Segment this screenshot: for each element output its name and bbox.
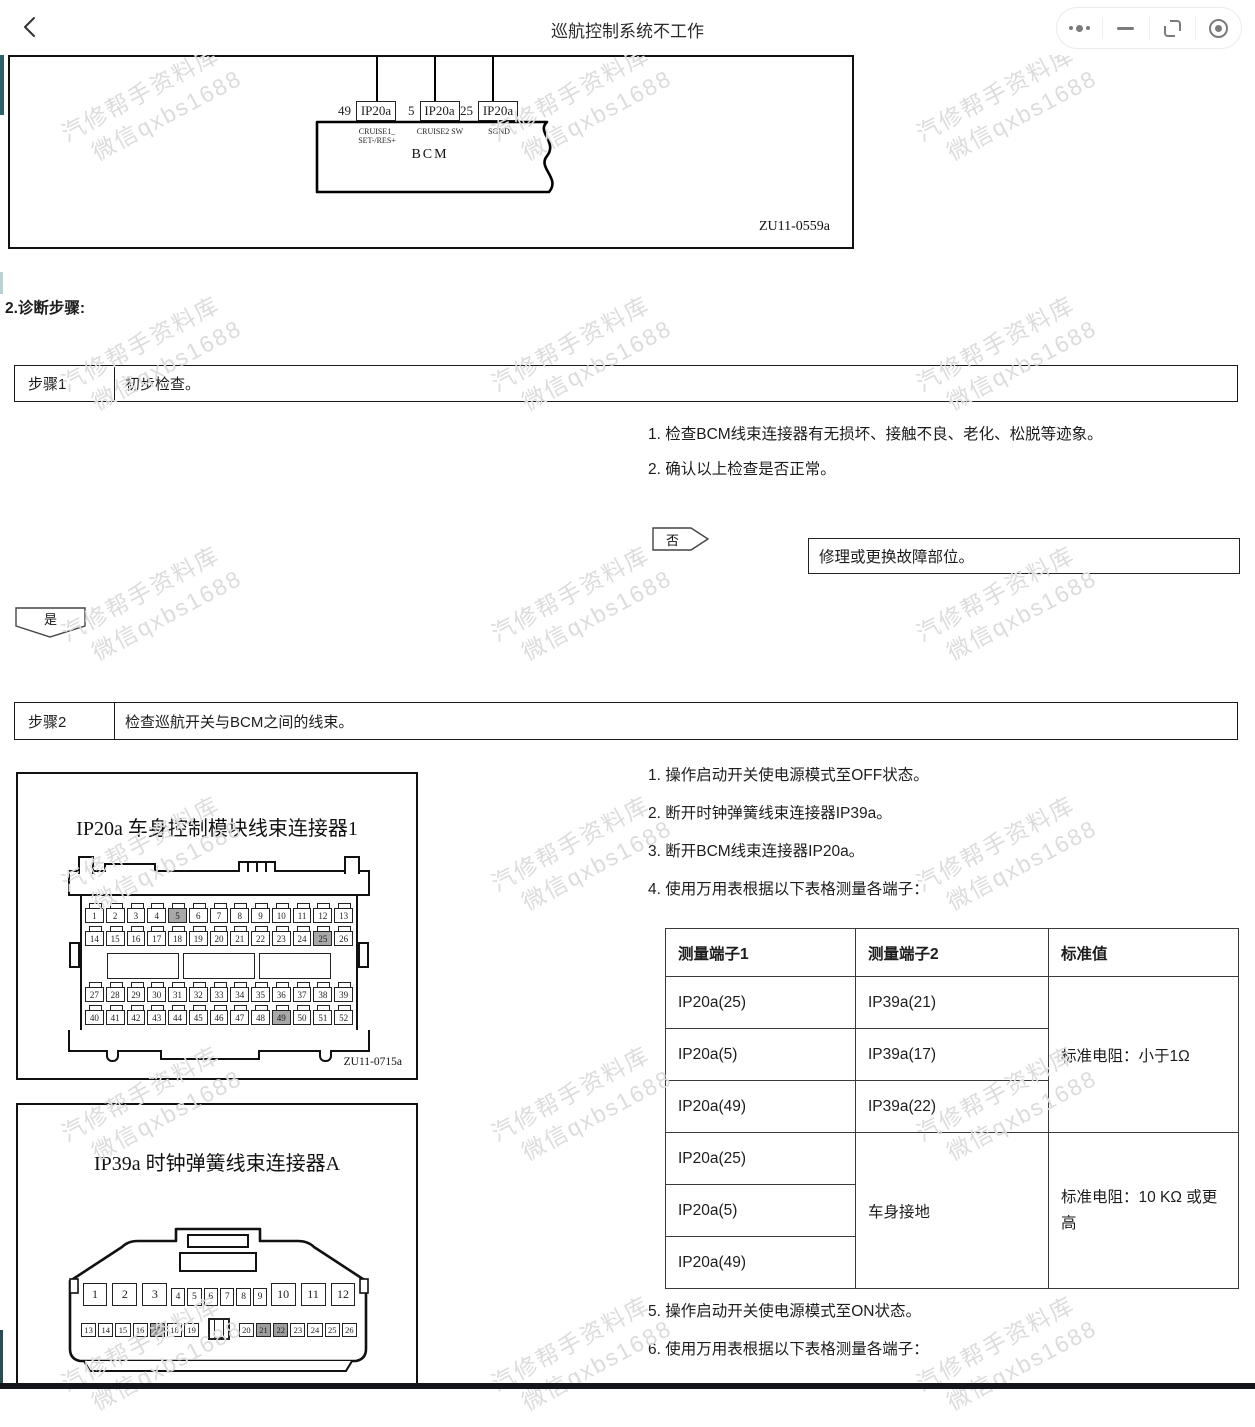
connector-code: IP20a	[356, 101, 396, 121]
ip20a-pin-24: 24	[293, 931, 312, 946]
ip39a-pin-26: 26	[342, 1323, 357, 1337]
exit-target-icon[interactable]	[1196, 8, 1241, 48]
terminal1-cell: IP20a(5)	[666, 1029, 856, 1081]
ip20a-pin-17: 17	[147, 931, 166, 946]
ip20a-pin-row-2: 27282930313233343536373839	[85, 987, 353, 1002]
watermark: 汽修帮手资料库微信qxbs1688	[486, 535, 677, 676]
left-edge-dark	[0, 1330, 3, 1383]
ip20a-pin-8: 8	[230, 908, 249, 923]
pin-terminal-49: 49 IP20a	[338, 101, 396, 121]
ip20a-pin-38: 38	[313, 987, 332, 1002]
figure-code: ZU11-0715a	[344, 1056, 402, 1068]
housing-ribs	[238, 861, 274, 872]
ip20a-pin-49: 49	[272, 1010, 291, 1025]
ip39a-row1: 123456789101112	[80, 1283, 358, 1306]
ip20a-pin-7: 7	[210, 908, 229, 923]
ip20a-pin-15: 15	[106, 931, 125, 946]
ip20a-pin-12: 12	[313, 908, 332, 923]
standard-value-cell: 标准电阻：小于1Ω	[1049, 977, 1239, 1133]
list-item: 2. 断开时钟弹簧线束连接器IP39a。	[648, 803, 929, 825]
no-branch-flag: 否	[652, 527, 710, 551]
ip39a-pin-7: 7	[220, 1288, 234, 1306]
mount-ear	[78, 856, 94, 874]
housing-step	[104, 863, 156, 872]
ip20a-connector-drawing: 12345678910111213 1415161718192021222324…	[68, 870, 370, 1052]
wire-line	[376, 57, 378, 103]
repair-action-box: 修理或更换故障部位。	[808, 538, 1240, 574]
connector-bottom-flange	[68, 1030, 370, 1052]
ip39a-pin-8: 8	[236, 1288, 250, 1306]
standard-value-cell: 标准电阻：10 KΩ 或更高	[1049, 1133, 1239, 1289]
wire-line	[434, 57, 436, 103]
ip20a-pin-40: 40	[85, 1010, 104, 1025]
ip20a-pin-5: 5	[168, 908, 187, 923]
ip39a-pin-21: 21	[256, 1323, 271, 1337]
ip20a-pin-29: 29	[127, 987, 146, 1002]
step1-instructions: 1. 检查BCM线束连接器有无损坏、接触不良、老化、松脱等迹象。 2. 确认以上…	[648, 424, 1103, 494]
ip39a-pin-17: 17	[150, 1323, 165, 1337]
ip20a-pin-22: 22	[251, 931, 270, 946]
ip39a-pin-10: 10	[271, 1283, 296, 1306]
pin-terminal-25: 25 IP20a	[460, 101, 518, 121]
ip39a-pin-6: 6	[204, 1288, 218, 1306]
ip20a-pin-42: 42	[127, 1010, 146, 1025]
ip39a-pin-23: 23	[290, 1323, 305, 1337]
step2-instructions: 1. 操作启动开关使电源模式至OFF状态。 2. 断开时钟弹簧线束连接器IP39…	[648, 765, 929, 917]
yes-flag-label: 是	[15, 609, 86, 628]
ip39a-pin-16: 16	[133, 1323, 148, 1337]
ip20a-pin-18: 18	[168, 931, 187, 946]
table-row: IP20a(25) IP39a(21) 标准电阻：小于1Ω	[666, 977, 1239, 1029]
minimize-icon[interactable]	[1103, 8, 1148, 48]
ip20a-pin-32: 32	[189, 987, 208, 1002]
ip20a-pin-row-1: 14151617181920212223242526	[85, 931, 353, 946]
pin-number: 5	[408, 103, 415, 119]
bottom-tongue	[160, 1050, 260, 1060]
ip20a-connector-figure: IP20a 车身控制模块线束连接器1 12345678910111213 141…	[16, 772, 418, 1080]
ip20a-pin-13: 13	[334, 908, 353, 923]
ip20a-pin-37: 37	[293, 987, 312, 1002]
ip39a-pin-13: 13	[81, 1323, 96, 1337]
step1-description: 初步检查。	[115, 366, 1237, 401]
miniprogram-capsule	[1056, 7, 1242, 49]
ip39a-pin-19: 19	[184, 1323, 199, 1337]
step2-description: 检查巡航开关与BCM之间的线束。	[115, 703, 1237, 739]
wire-line	[492, 57, 494, 103]
watermark: 汽修帮手资料库微信qxbs1688	[911, 35, 1102, 176]
list-item: 1. 检查BCM线束连接器有无损坏、接触不良、老化、松脱等迹象。	[648, 424, 1103, 446]
ip20a-pin-25: 25	[313, 931, 332, 946]
bottom-window-edge	[0, 1383, 1255, 1389]
side-bracket	[358, 942, 369, 968]
ip39a-pin-5: 5	[187, 1288, 201, 1306]
list-item: 2. 确认以上检查是否正常。	[648, 459, 1103, 481]
ip20a-pin-23: 23	[272, 931, 291, 946]
terminal1-cell: IP20a(49)	[666, 1081, 856, 1133]
ip39a-pin-20: 20	[239, 1323, 254, 1337]
ip39a-pin-15: 15	[115, 1323, 130, 1337]
ip20a-pin-6: 6	[189, 908, 208, 923]
signal-label: SGND	[459, 127, 539, 136]
ip20a-pin-27: 27	[85, 987, 104, 1002]
connector-code: IP20a	[420, 101, 460, 121]
ip20a-pin-50: 50	[293, 1010, 312, 1025]
step1-label: 步骤1	[15, 366, 115, 401]
ip39a-pin-2: 2	[112, 1283, 137, 1306]
blank-slot-row	[85, 953, 353, 979]
mount-ear	[344, 856, 360, 874]
col-header: 测量端子2	[856, 929, 1049, 977]
ip20a-pin-26: 26	[334, 931, 353, 946]
foot	[319, 1050, 332, 1062]
ip20a-pin-34: 34	[230, 987, 249, 1002]
ip20a-pin-16: 16	[127, 931, 146, 946]
ip39a-pin-4: 4	[171, 1288, 185, 1306]
section-heading: 2.诊断步骤:	[5, 296, 85, 318]
ip39a-connector-figure: IP39a 时钟弹簧线束连接器A 123456789101112 1314151…	[16, 1103, 418, 1389]
side-bracket	[69, 942, 80, 968]
ip39a-pin-12: 12	[331, 1283, 356, 1306]
watermark: 汽修帮手资料库微信qxbs1688	[486, 1035, 677, 1176]
ip20a-figure-title: IP20a 车身控制模块线束连接器1	[18, 812, 416, 841]
foot	[106, 1050, 119, 1062]
pin-number: 49	[338, 103, 351, 119]
list-item: 5. 操作启动开关使电源模式至ON状态。	[648, 1301, 929, 1323]
ip39a-pin-11: 11	[301, 1283, 326, 1306]
watermark: 汽修帮手资料库微信qxbs1688	[911, 285, 1102, 426]
step2-label: 步骤2	[15, 703, 115, 739]
step2-header-row: 步骤2 检查巡航开关与BCM之间的线束。	[14, 702, 1238, 740]
ip20a-pin-51: 51	[313, 1010, 332, 1025]
pin-terminal-5: 5 IP20a	[408, 101, 460, 121]
ip39a-pin-18: 18	[167, 1323, 182, 1337]
figure-code: ZU11-0559a	[759, 219, 830, 235]
list-item: 6. 使用万用表根据以下表格测量各端子：	[648, 1339, 929, 1361]
ip39a-pin-3: 3	[142, 1283, 167, 1306]
table-row: IP20a(25) 车身接地 标准电阻：10 KΩ 或更高	[666, 1133, 1239, 1185]
ip20a-pin-33: 33	[210, 987, 229, 1002]
terminal2-cell: IP39a(17)	[856, 1029, 1049, 1081]
ip20a-pin-row-0: 12345678910111213	[85, 908, 353, 923]
ip39a-center-key	[208, 1318, 230, 1340]
more-icon[interactable]	[1057, 8, 1102, 48]
step1-header-row: 步骤1 初步检查。	[14, 365, 1238, 402]
watermark: 汽修帮手资料库微信qxbs1688	[911, 1285, 1102, 1426]
ip20a-pin-31: 31	[168, 987, 187, 1002]
measurement-table: 测量端子1 测量端子2 标准值 IP20a(25) IP39a(21) 标准电阻…	[665, 928, 1239, 1289]
ip20a-pin-10: 10	[272, 908, 291, 923]
watermark: 汽修帮手资料库微信qxbs1688	[56, 535, 247, 676]
list-item: 4. 使用万用表根据以下表格测量各端子：	[648, 879, 929, 901]
ip20a-pin-30: 30	[147, 987, 166, 1002]
ip20a-pin-36: 36	[272, 987, 291, 1002]
table-header-row: 测量端子1 测量端子2 标准值	[666, 929, 1239, 977]
ip39a-pin-25: 25	[325, 1323, 340, 1337]
ip20a-pin-3: 3	[127, 908, 146, 923]
ip20a-pin-52: 52	[334, 1010, 353, 1025]
ip39a-pin-22: 22	[273, 1323, 288, 1337]
ip20a-pin-28: 28	[106, 987, 125, 1002]
terminal1-cell: IP20a(25)	[666, 977, 856, 1029]
pin-field: 12345678910111213 1415161718192021222324…	[80, 894, 358, 1032]
connector-code: IP20a	[478, 101, 518, 121]
ip20a-pin-21: 21	[230, 931, 249, 946]
terminal1-cell: IP20a(49)	[666, 1237, 856, 1289]
ip20a-pin-4: 4	[147, 908, 166, 923]
fullscreen-icon[interactable]	[1150, 8, 1195, 48]
ip39a-pin-9: 9	[253, 1288, 267, 1306]
list-item: 1. 操作启动开关使电源模式至OFF状态。	[648, 765, 929, 787]
ip39a-figure-title: IP39a 时钟弹簧线束连接器A	[18, 1147, 416, 1176]
ip39a-pin-24: 24	[307, 1323, 322, 1337]
terminal2-cell: IP39a(21)	[856, 977, 1049, 1029]
pin-number: 25	[460, 103, 473, 119]
col-header: 测量端子1	[666, 929, 856, 977]
ip20a-pin-43: 43	[147, 1010, 166, 1025]
watermark: 汽修帮手资料库微信qxbs1688	[486, 285, 677, 426]
watermark: 汽修帮手资料库微信qxbs1688	[911, 785, 1102, 926]
ip39a-pin-14: 14	[98, 1323, 113, 1337]
ip20a-pin-1: 1	[85, 908, 104, 923]
terminal2-cell: IP39a(22)	[856, 1081, 1049, 1133]
ip20a-pin-14: 14	[85, 931, 104, 946]
ip20a-pin-44: 44	[168, 1010, 187, 1025]
ip20a-pin-45: 45	[189, 1010, 208, 1025]
terminal1-cell: IP20a(5)	[666, 1185, 856, 1237]
ip20a-pin-46: 46	[210, 1010, 229, 1025]
yes-branch-flag: 是	[15, 607, 86, 638]
ip20a-pin-19: 19	[189, 931, 208, 946]
list-item: 3. 断开BCM线束连接器IP20a。	[648, 841, 929, 863]
bcm-label: BCM	[315, 147, 545, 163]
ip20a-pin-39: 39	[334, 987, 353, 1002]
ip20a-pin-row-3: 40414243444546474849505152	[85, 1010, 353, 1025]
terminal1-cell: IP20a(25)	[666, 1133, 856, 1185]
ip39a-connector-drawing: 123456789101112 131415161718192021222324…	[58, 1223, 380, 1381]
no-flag-label: 否	[666, 530, 679, 549]
ip20a-pin-47: 47	[230, 1010, 249, 1025]
ip20a-pin-2: 2	[106, 908, 125, 923]
step2-instructions-continued: 5. 操作启动开关使电源模式至ON状态。 6. 使用万用表根据以下表格测量各端子…	[648, 1301, 929, 1377]
ip20a-pin-48: 48	[251, 1010, 270, 1025]
ip20a-pin-41: 41	[106, 1010, 125, 1025]
ip20a-pin-11: 11	[293, 908, 312, 923]
ip39a-pin-1: 1	[83, 1283, 108, 1306]
ip20a-pin-20: 20	[210, 931, 229, 946]
ip20a-pin-35: 35	[251, 987, 270, 1002]
connector-top-flange	[68, 870, 370, 896]
top-bar: 巡航控制系统不工作	[0, 0, 1255, 55]
ip39a-row2: 1314151617181920212223242526	[80, 1315, 358, 1337]
col-header: 标准值	[1049, 929, 1239, 977]
left-scroll-fragment	[0, 272, 3, 294]
wiring-diagram-figure: 49 IP20a 5 IP20a 25 IP20a CRUISE1_ SET-/…	[8, 55, 854, 249]
terminal2-ground-cell: 车身接地	[856, 1133, 1049, 1289]
ip20a-pin-9: 9	[251, 908, 270, 923]
